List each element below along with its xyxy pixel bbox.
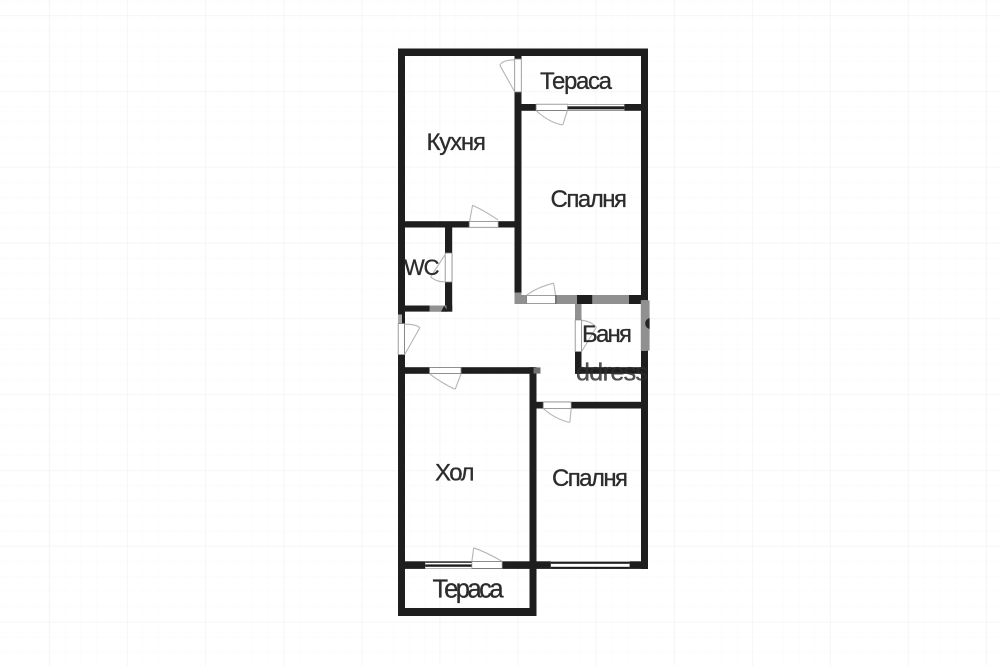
svg-text:ddress: ddress bbox=[576, 359, 648, 387]
svg-text:Тераса: Тераса bbox=[433, 576, 505, 604]
svg-text:WC: WC bbox=[404, 255, 440, 280]
svg-text:Спалня: Спалня bbox=[551, 186, 628, 213]
svg-text:Кухня: Кухня bbox=[427, 129, 487, 156]
svg-text:Баня: Баня bbox=[582, 321, 632, 348]
svg-text:Тераса: Тераса bbox=[540, 68, 613, 95]
svg-text:Хол: Хол bbox=[435, 460, 475, 487]
svg-text:Спалня: Спалня bbox=[552, 465, 628, 492]
